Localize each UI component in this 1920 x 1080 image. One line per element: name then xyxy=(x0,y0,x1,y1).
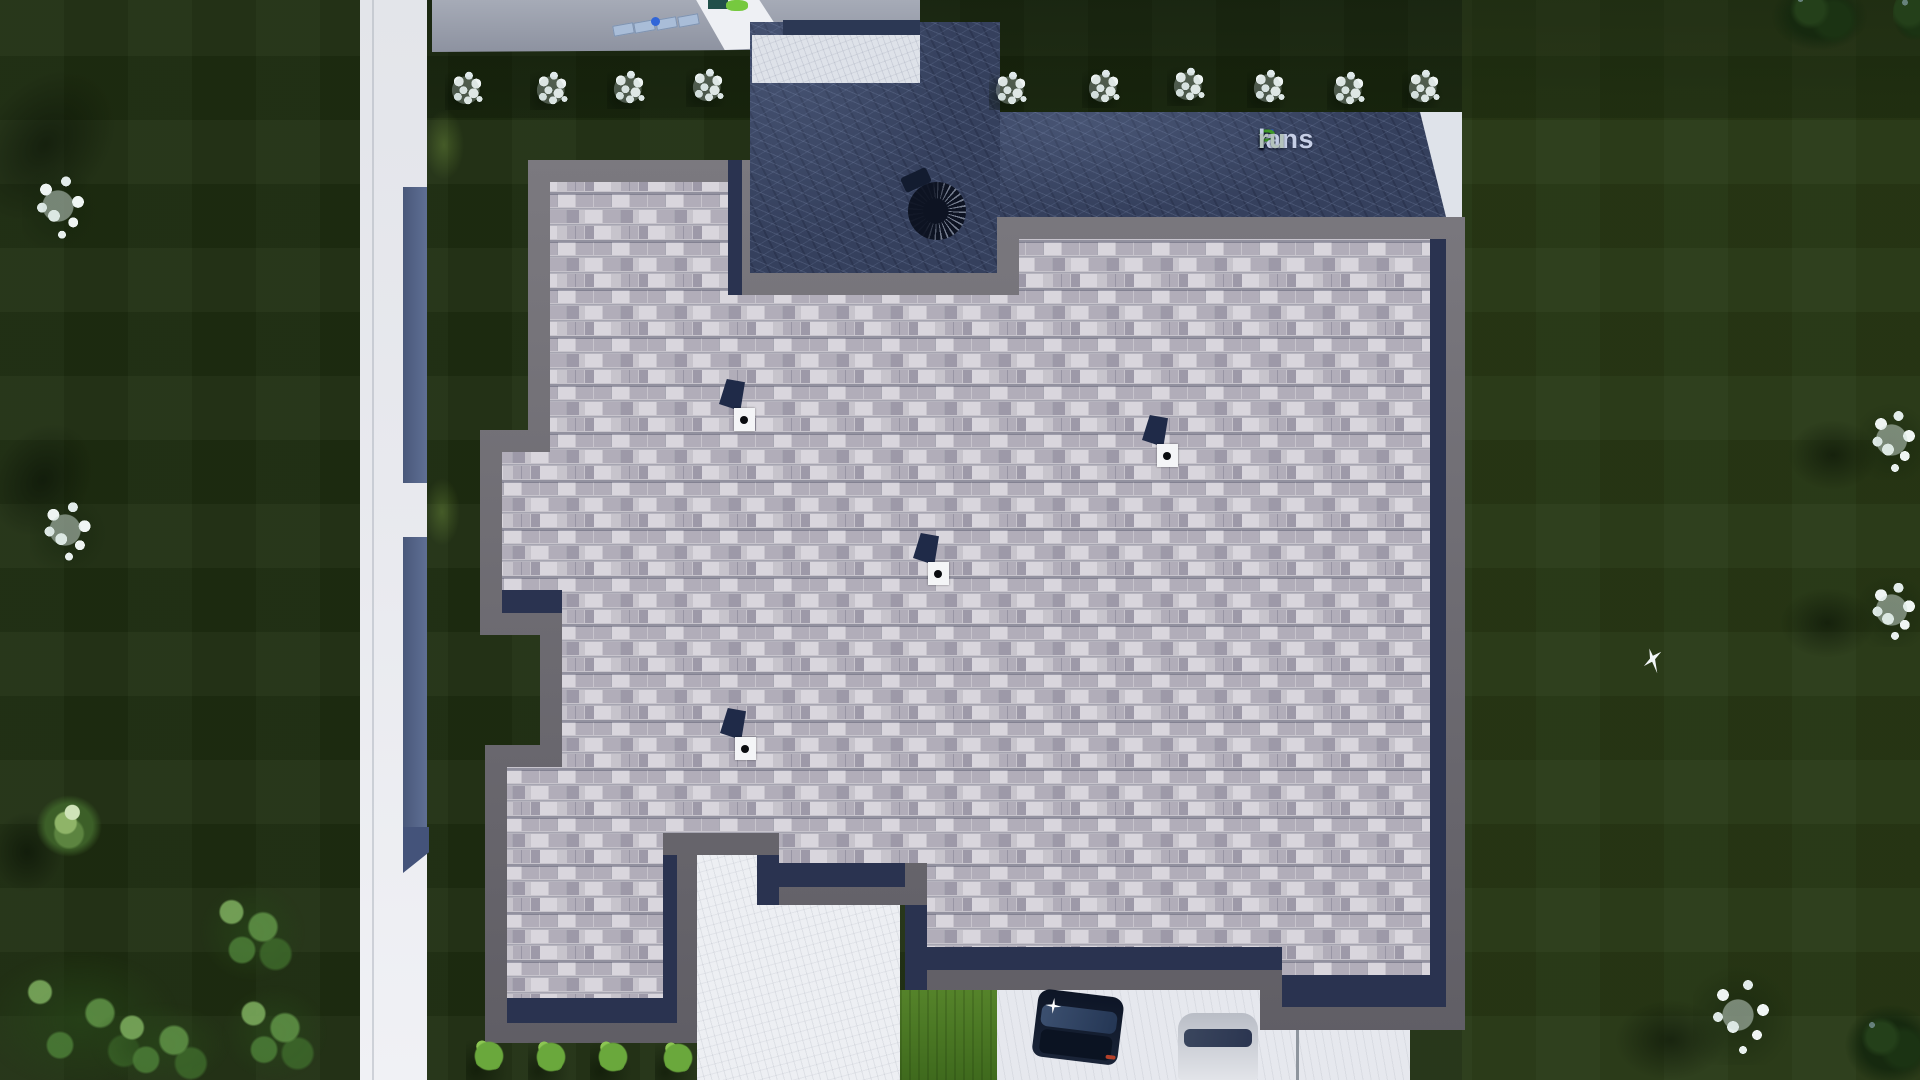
lawn-strip xyxy=(900,990,997,1080)
dark-car xyxy=(1031,988,1125,1066)
vent-hole xyxy=(1163,452,1171,460)
vent-box xyxy=(1157,444,1178,467)
vent-shadow xyxy=(1142,415,1168,447)
green-tree xyxy=(90,1002,230,1080)
white-shrub xyxy=(1327,66,1373,110)
green-tree xyxy=(222,985,327,1080)
car-windshield xyxy=(1184,1029,1252,1047)
white-shrub xyxy=(1167,62,1213,106)
roof-vent xyxy=(911,533,949,585)
white-shrub xyxy=(686,63,732,107)
white-tree xyxy=(1860,400,1920,480)
roof-vent xyxy=(717,379,755,431)
dark-tree xyxy=(1845,1005,1920,1080)
vent-box xyxy=(734,408,755,431)
fence-line xyxy=(1296,1030,1299,1080)
bright-shrub xyxy=(528,1033,574,1080)
light-car xyxy=(1178,1013,1258,1080)
aerial-render-canvas: FixPlans.ru xyxy=(0,0,1920,1080)
car-roof xyxy=(1039,1029,1113,1062)
roof-shingles xyxy=(502,182,1430,998)
roof-vent xyxy=(1140,415,1178,467)
vent-hole xyxy=(934,570,942,578)
vent-box xyxy=(735,737,756,760)
bright-shrub xyxy=(590,1033,636,1080)
white-shrub xyxy=(607,65,653,109)
vent-box xyxy=(928,562,949,585)
vent-shadow xyxy=(913,533,939,565)
white-shrub xyxy=(1402,64,1448,108)
white-shrub xyxy=(530,66,576,110)
roof-vent xyxy=(718,708,756,760)
white-tree xyxy=(1860,573,1920,647)
white-shrub xyxy=(445,66,491,110)
vent-shadow xyxy=(720,708,746,740)
white-shrub xyxy=(1082,64,1128,108)
green-tree xyxy=(200,882,305,982)
vent-hole xyxy=(741,745,749,753)
vent-shadow xyxy=(719,379,745,411)
white-tree xyxy=(1693,965,1793,1065)
vent-hole xyxy=(740,416,748,424)
white-shrub xyxy=(989,66,1035,110)
bright-shrub xyxy=(655,1034,701,1080)
bright-shrub xyxy=(466,1032,512,1080)
white-shrub xyxy=(1247,64,1293,108)
